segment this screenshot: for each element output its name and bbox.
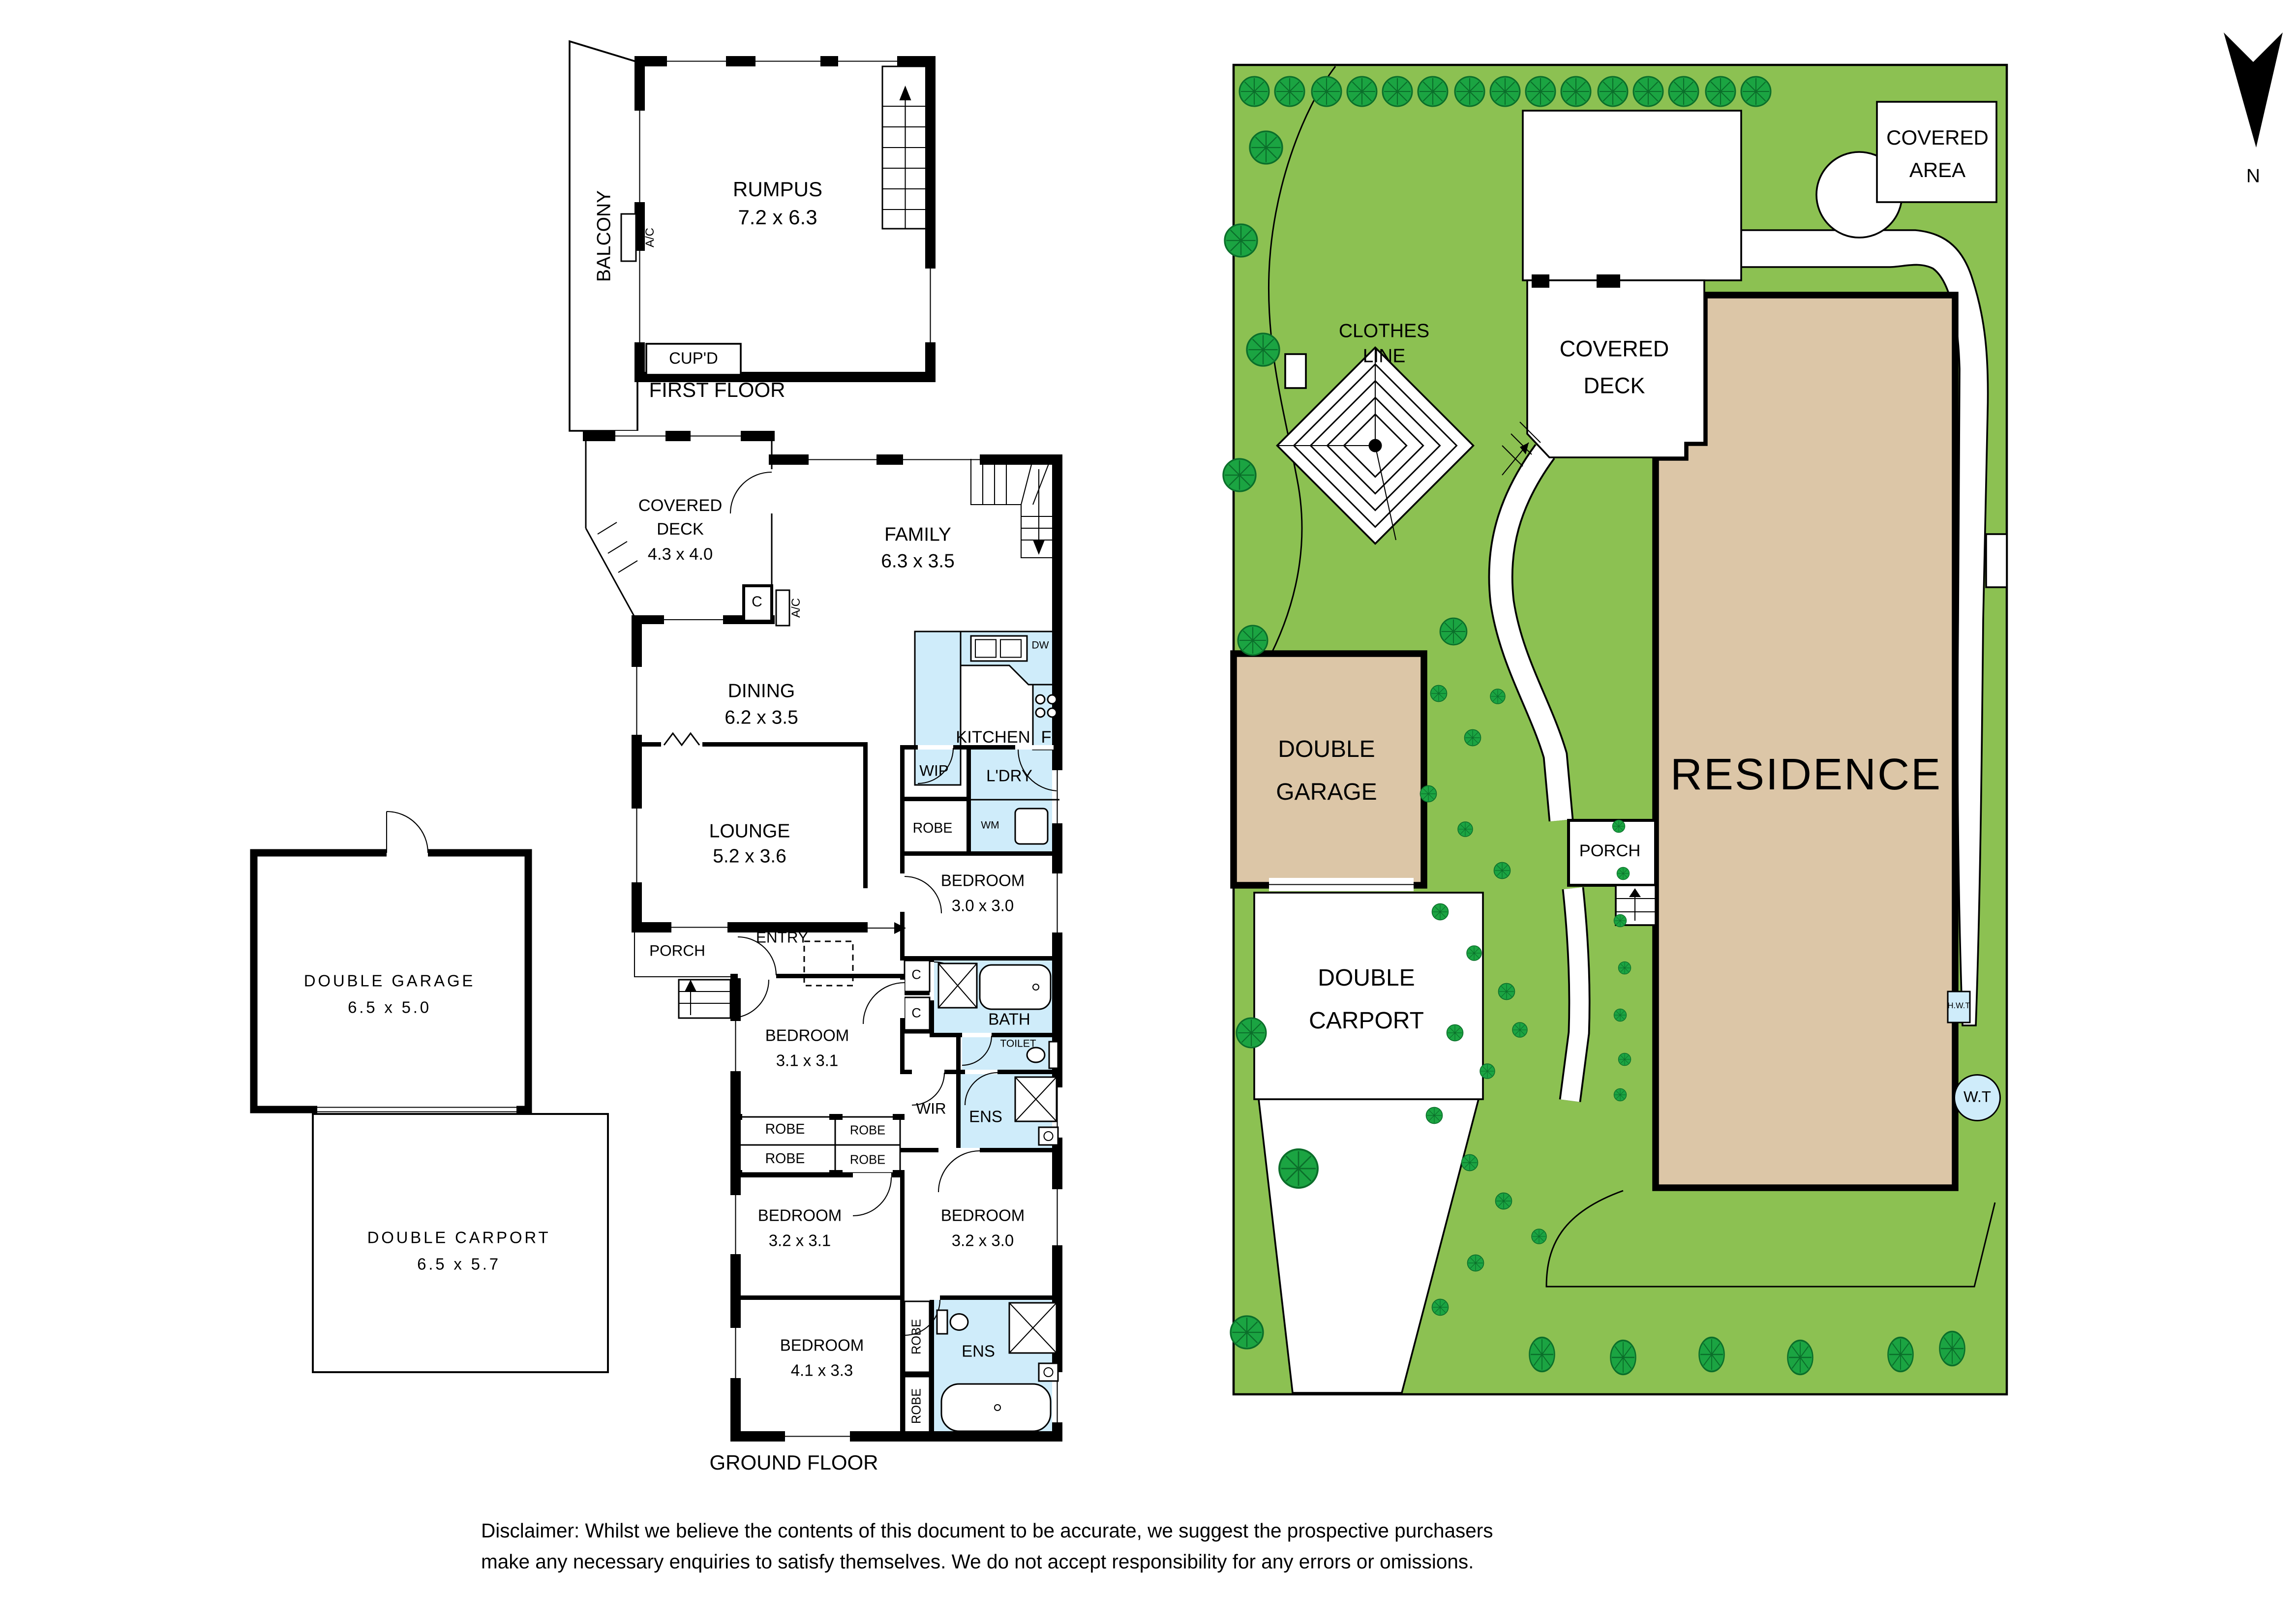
ens2-label: ENS bbox=[962, 1345, 995, 1361]
wm-label: WM bbox=[981, 821, 999, 832]
kitchen-label: KITCHEN bbox=[956, 731, 1030, 748]
rumpus-label: RUMPUS bbox=[733, 179, 822, 199]
ldry-label: L'DRY bbox=[986, 770, 1032, 786]
toilet-label: TOILET bbox=[1000, 1040, 1036, 1050]
bedroom4-size: 4.1 x 3.3 bbox=[791, 1364, 853, 1381]
clothes-line-l1: CLOTHES bbox=[1339, 321, 1429, 340]
gf-covered-deck-l2: DECK bbox=[657, 523, 704, 540]
dining-size: 6.2 x 3.5 bbox=[725, 708, 798, 727]
floorplan-page: BALCONY A/C RUMPUS 7.2 x 6.3 CUP'D FIRST… bbox=[0, 0, 2296, 1623]
c1-label: C bbox=[911, 969, 921, 982]
ground-floor-title: GROUND FLOOR bbox=[709, 1452, 878, 1473]
site-garage-l2: GARAGE bbox=[1276, 782, 1377, 806]
site-carport-l2: CARPORT bbox=[1309, 1011, 1424, 1034]
site-carport-l1: DOUBLE bbox=[1318, 968, 1415, 992]
robe-b-label: ROBE bbox=[850, 1124, 885, 1137]
site-porch-label: PORCH bbox=[1579, 844, 1641, 862]
clothes-line-l2: LINE bbox=[1363, 346, 1406, 365]
gf-porch-label: PORCH bbox=[649, 944, 705, 960]
wt-label: W.T bbox=[1964, 1090, 1991, 1106]
bedroom5-label: BEDROOM bbox=[941, 874, 1025, 891]
dining-label: DINING bbox=[728, 681, 795, 700]
bedroom3-label: BEDROOM bbox=[941, 1209, 1025, 1226]
hwt-label: H.W.T bbox=[1948, 1004, 1970, 1012]
rumpus-size: 7.2 x 6.3 bbox=[738, 207, 817, 227]
cupd-label: CUP'D bbox=[669, 352, 718, 368]
carport-plan-size: 6.5 x 5.7 bbox=[417, 1258, 501, 1274]
disclaimer-line1: Disclaimer: Whilst we believe the conten… bbox=[481, 1520, 1493, 1542]
site-garage-l1: DOUBLE bbox=[1278, 739, 1375, 763]
wip-label: WIP bbox=[919, 764, 949, 780]
bedroom4-label: BEDROOM bbox=[780, 1339, 864, 1355]
robe-v1-label: ROBE bbox=[910, 1319, 923, 1354]
gf-covered-deck-size: 4.3 x 4.0 bbox=[648, 548, 713, 565]
robe-c-label: ROBE bbox=[765, 1153, 805, 1167]
covered-area-l1: COVERED bbox=[1886, 127, 1989, 148]
lounge-label: LOUNGE bbox=[709, 821, 790, 841]
north-label: N bbox=[2246, 166, 2260, 185]
robe-a-label: ROBE bbox=[765, 1123, 805, 1138]
dw-label: DW bbox=[1031, 641, 1049, 652]
first-floor-title: FIRST FLOOR bbox=[649, 379, 785, 400]
ff-ac-label: A/C bbox=[645, 228, 657, 247]
disclaimer-line2: make any necessary enquiries to satisfy … bbox=[481, 1551, 1474, 1573]
robe-v2-label: ROBE bbox=[910, 1388, 923, 1424]
balcony-label: BALCONY bbox=[594, 190, 613, 282]
carport-plan-label: DOUBLE CARPORT bbox=[367, 1232, 551, 1248]
family-label: FAMILY bbox=[884, 525, 951, 544]
garage-plan-label: DOUBLE GARAGE bbox=[304, 975, 476, 991]
bath-label: BATH bbox=[988, 1013, 1030, 1029]
ens1-label: ENS bbox=[969, 1111, 1002, 1127]
residence-label: RESIDENCE bbox=[1670, 754, 1942, 798]
gf-cupboard-label: C bbox=[752, 596, 762, 611]
robe-d-label: ROBE bbox=[850, 1153, 885, 1166]
site-deck-l2: DECK bbox=[1583, 376, 1645, 398]
fridge-label: F bbox=[1041, 731, 1051, 748]
bedroom1-label: BEDROOM bbox=[765, 1029, 849, 1046]
lounge-size: 5.2 x 3.6 bbox=[713, 846, 786, 866]
c2-label: C bbox=[911, 1007, 921, 1021]
covered-area-l2: AREA bbox=[1909, 159, 1965, 180]
site-deck-l1: COVERED bbox=[1560, 339, 1669, 361]
bedroom2-size: 3.2 x 3.1 bbox=[769, 1234, 831, 1251]
wir-label: WIR bbox=[916, 1102, 946, 1117]
bedroom5-size: 3.0 x 3.0 bbox=[952, 900, 1014, 916]
robe-hall-label: ROBE bbox=[913, 822, 953, 837]
entry-label: ENTRY bbox=[756, 931, 808, 946]
gf-ac-label: A/C bbox=[791, 598, 803, 618]
bedroom2-label: BEDROOM bbox=[758, 1209, 842, 1226]
bedroom3-size: 3.2 x 3.0 bbox=[952, 1234, 1014, 1251]
family-size: 6.3 x 3.5 bbox=[881, 551, 955, 571]
bedroom1-size: 3.1 x 3.1 bbox=[776, 1054, 839, 1071]
garage-plan-size: 6.5 x 5.0 bbox=[348, 1001, 431, 1018]
labels-layer: BALCONY A/C RUMPUS 7.2 x 6.3 CUP'D FIRST… bbox=[0, 0, 2296, 1623]
gf-covered-deck-l1: COVERED bbox=[638, 499, 723, 516]
